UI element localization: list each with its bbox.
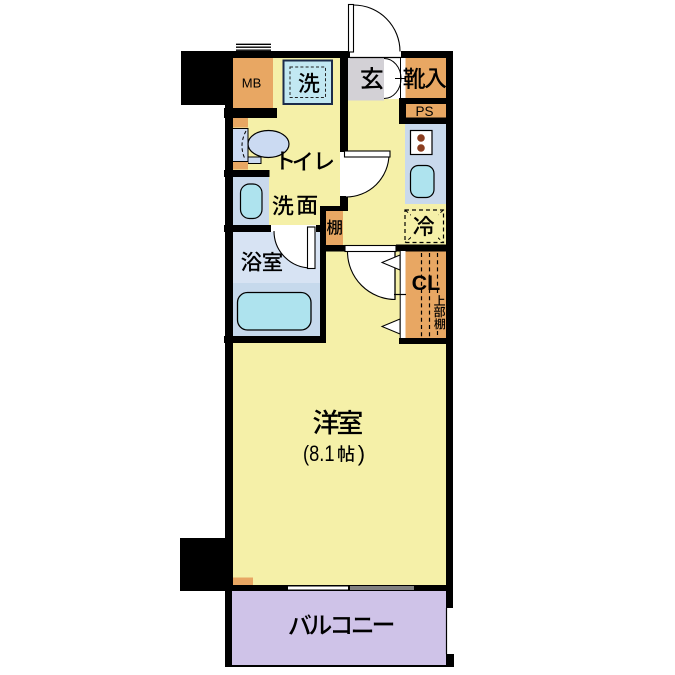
- svg-text:): ): [358, 441, 365, 466]
- svg-text:PS: PS: [415, 104, 433, 119]
- svg-text:MB: MB: [242, 76, 262, 91]
- svg-text:CL: CL: [412, 271, 441, 295]
- svg-text:(8.1: (8.1: [303, 441, 335, 466]
